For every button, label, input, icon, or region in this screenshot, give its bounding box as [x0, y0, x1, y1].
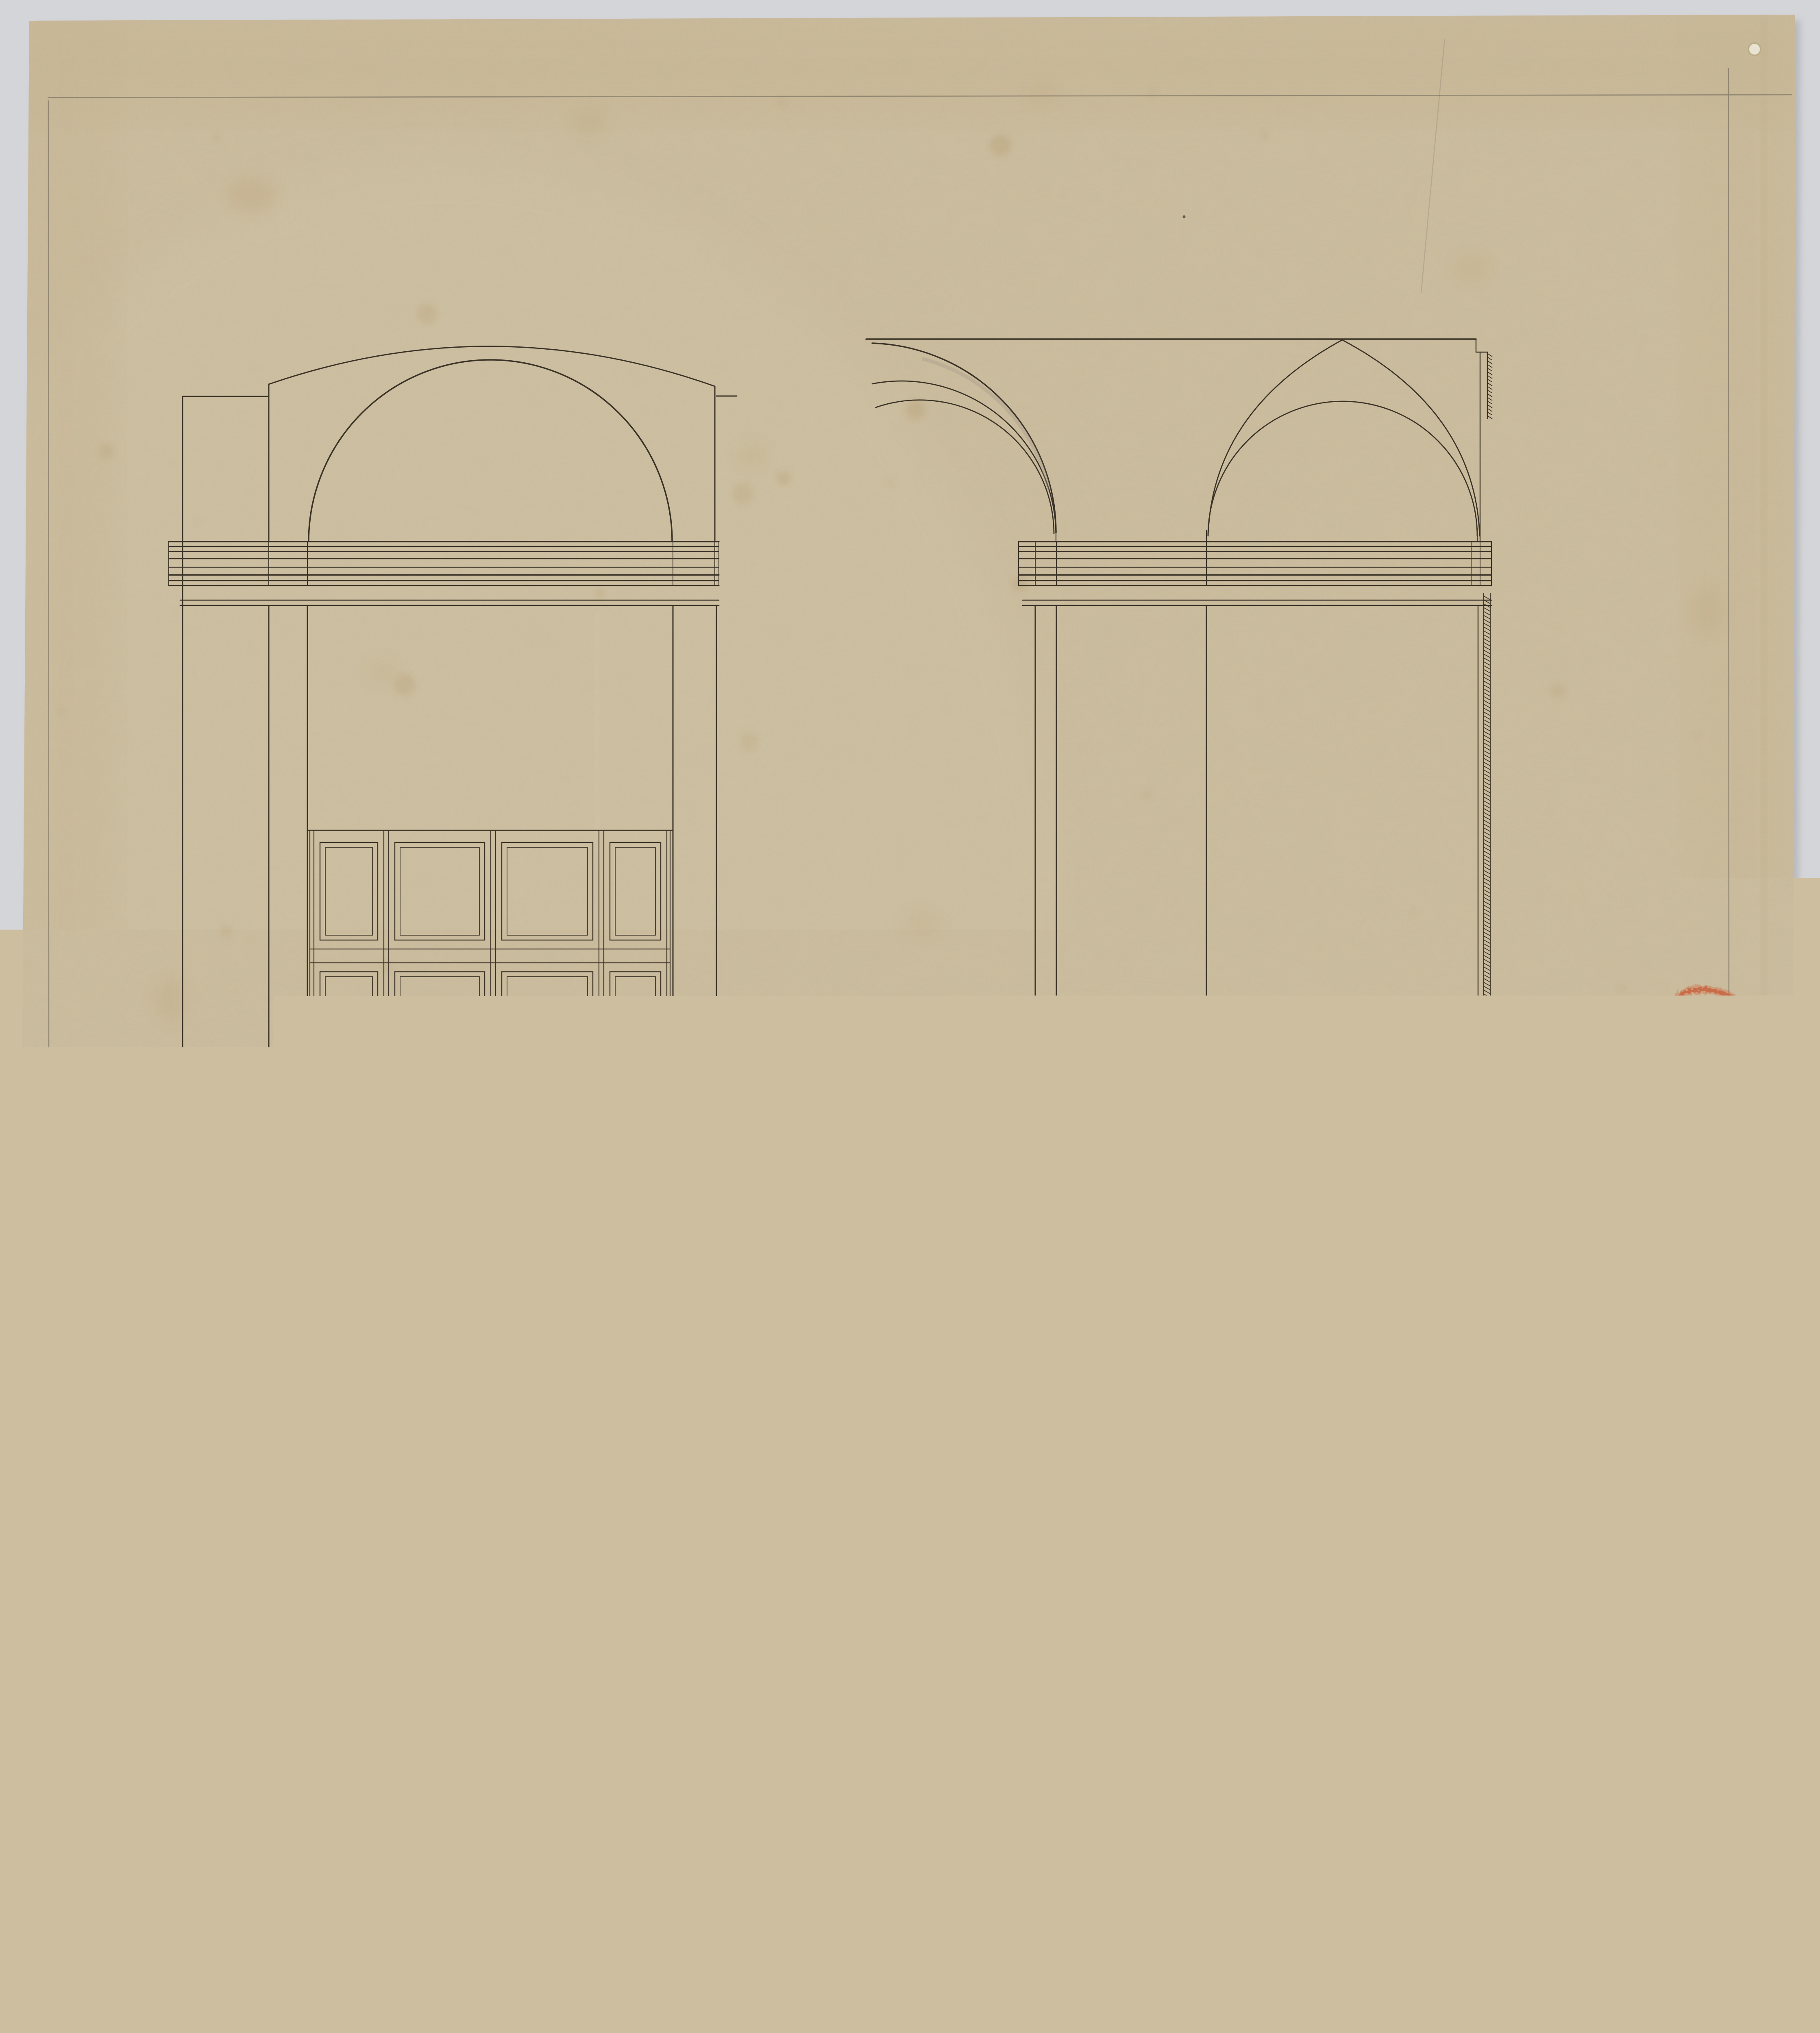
- svg-text:4.: 4.: [98, 1624, 113, 1648]
- svg-text:Eglise de Saint Jacques-sur. C: Eglise de Saint Jacques-sur. Caudenberg: [1028, 1637, 1583, 1669]
- svg-text:Echelle : 0,02° p.M .: Echelle : 0,02° p.M .: [871, 1958, 1105, 1985]
- svg-text:Etat Actuel.: Etat Actuel.: [1189, 1843, 1488, 1888]
- svg-text:Vue de face.: Vue de face.: [433, 1324, 594, 1355]
- svg-text:Installation de fonts baptisma: Installation de fonts baptismaux: [1095, 1749, 1579, 1785]
